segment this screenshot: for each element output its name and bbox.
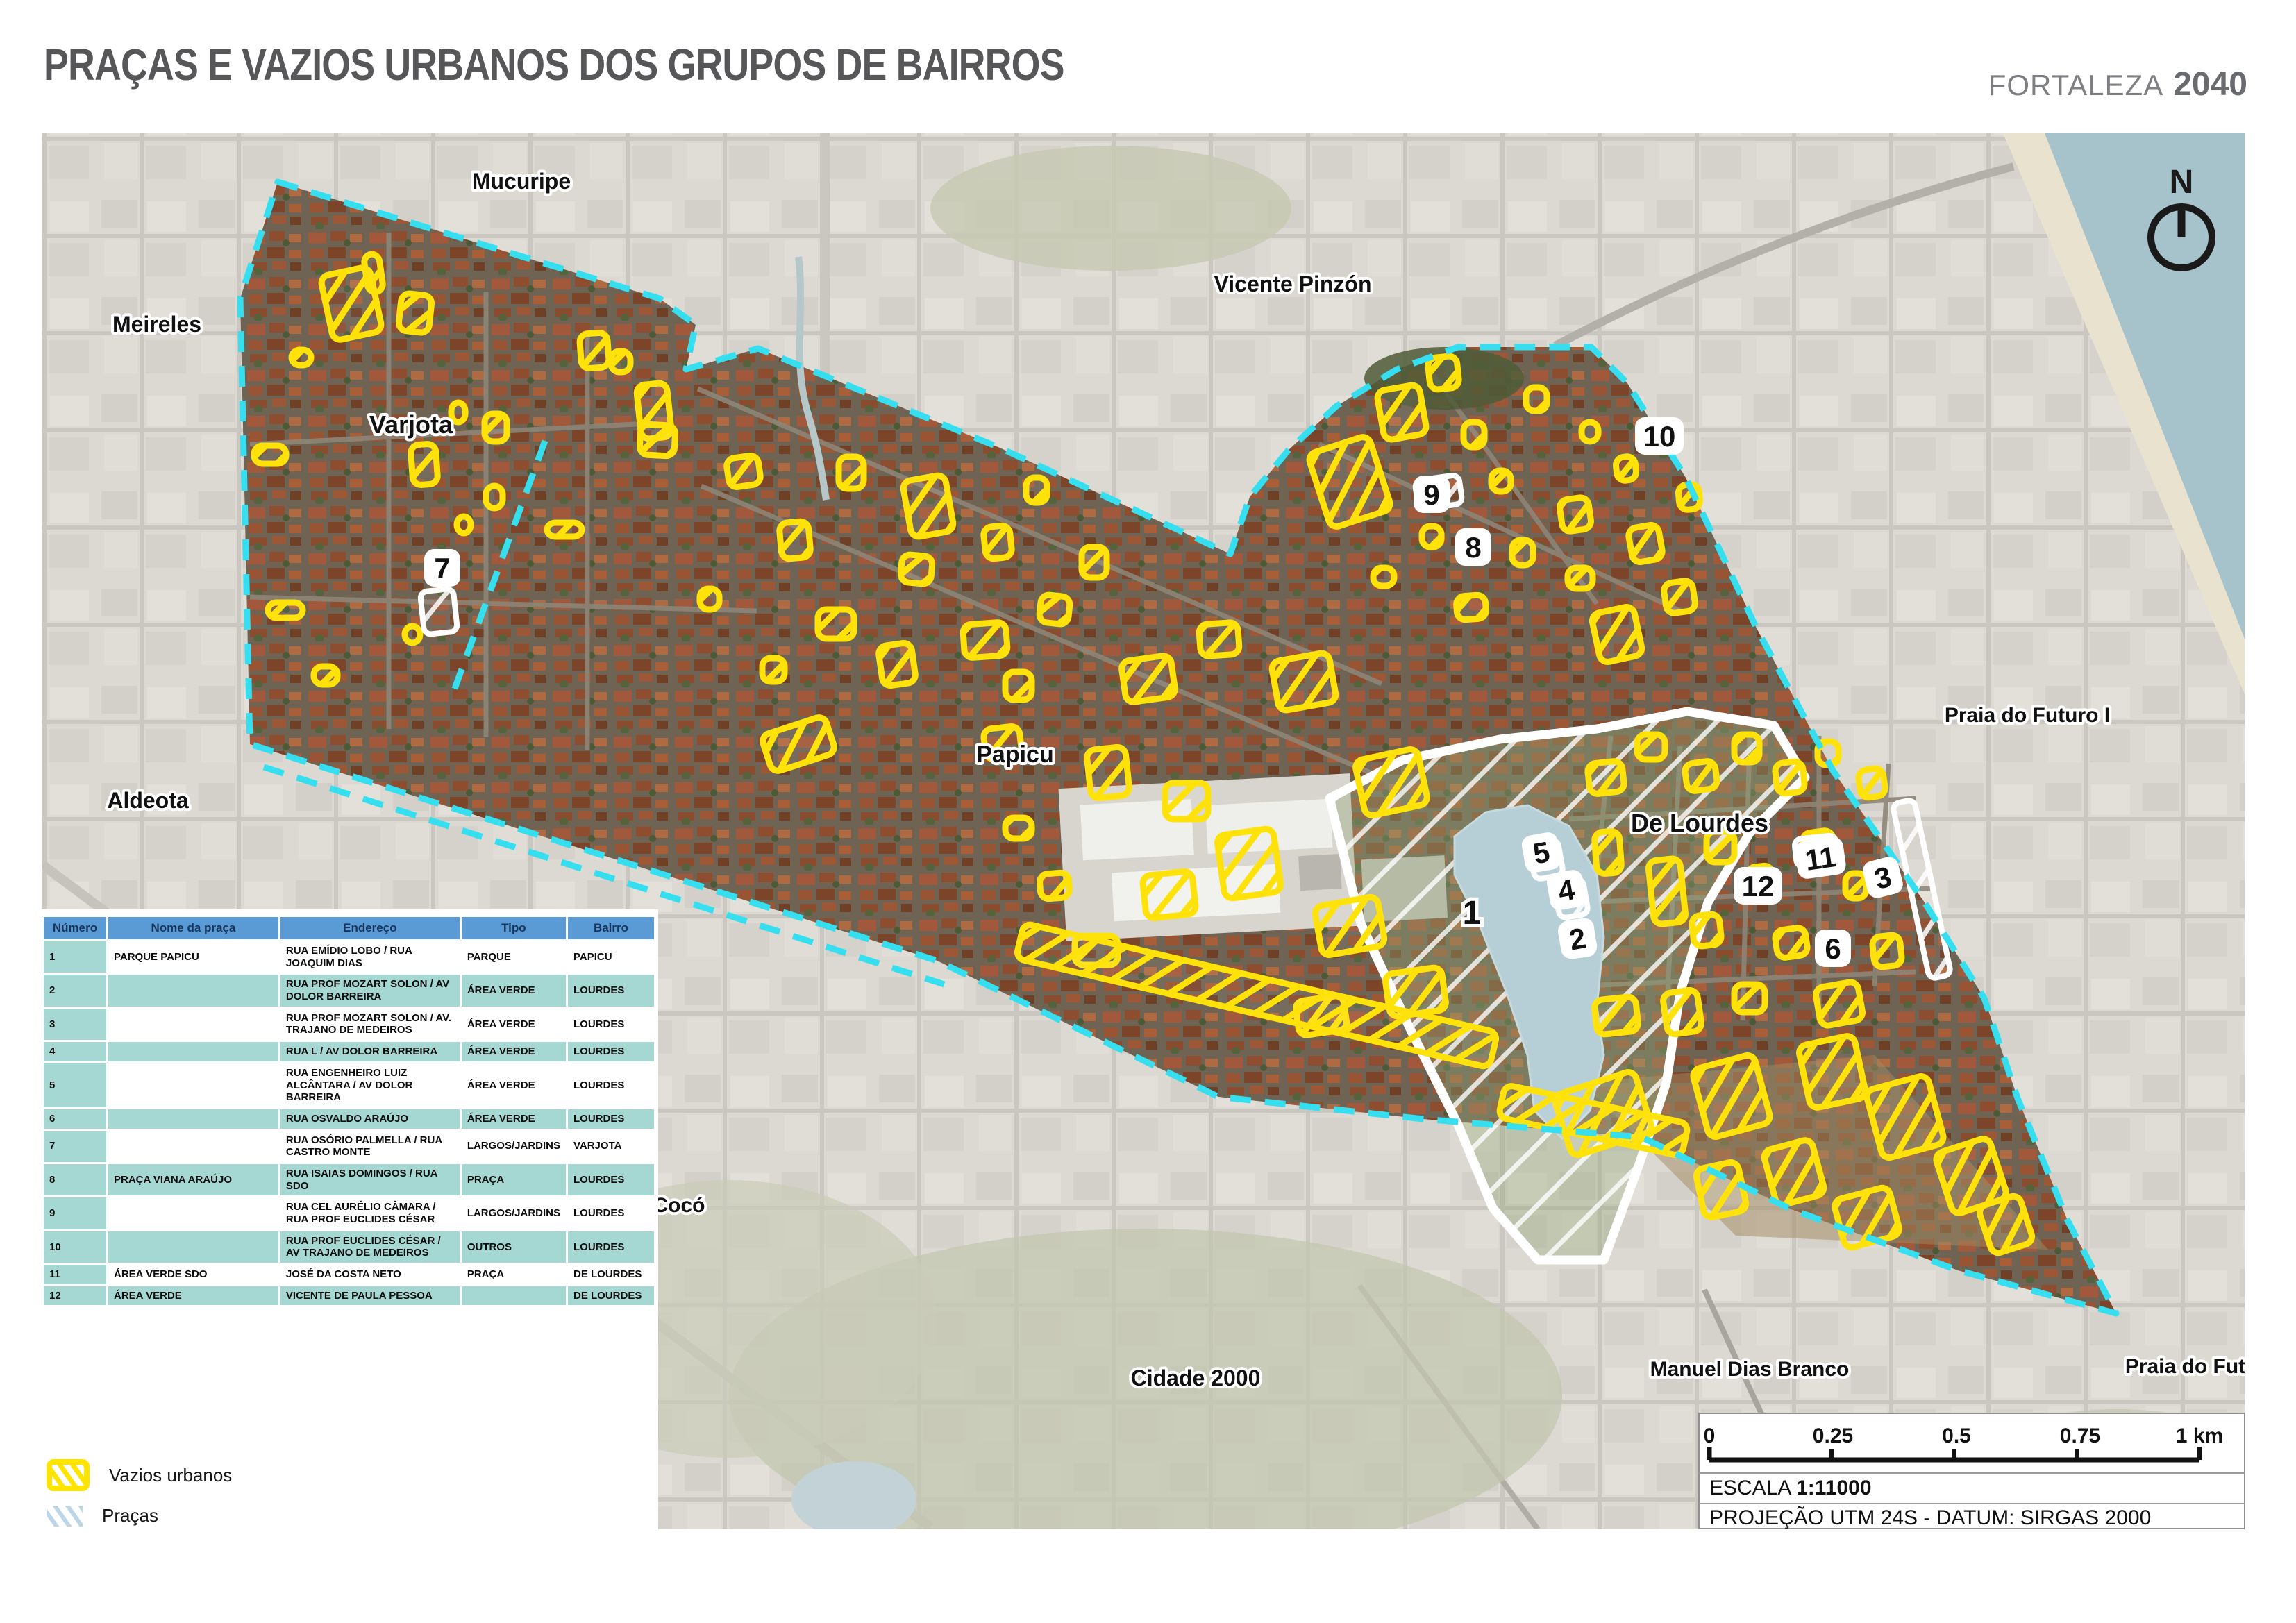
- vazio-shape: [726, 455, 761, 488]
- table-column-header: Número: [44, 917, 106, 939]
- vazio-shape: [398, 293, 432, 333]
- cell-tipo: [462, 1286, 566, 1306]
- cell-tipo: ÁREA VERDE: [462, 975, 566, 1006]
- table-row: 10RUA PROF EUCLIDES CÉSAR / AV TRAJANO D…: [44, 1231, 654, 1263]
- svg-text:9: 9: [1423, 478, 1439, 511]
- table-header: NúmeroNome da praçaEndereçoTipoBairro: [44, 917, 654, 939]
- page-title: PRAÇAS E VAZIOS URBANOS DOS GRUPOS DE BA…: [44, 39, 1064, 90]
- table-row: 9RUA CEL AURÉLIO CÂMARA / RUA PROF EUCLI…: [44, 1197, 654, 1229]
- vazio-shape: [451, 403, 465, 422]
- cell-addr: RUA OSVALDO ARAÚJO: [280, 1109, 460, 1129]
- region-label: Praia do Futuro I: [2125, 1355, 2245, 1378]
- vazio-shape: [1615, 456, 1636, 482]
- cell-tipo: LARGOS/JARDINS: [462, 1197, 566, 1229]
- map-marker-2: 2: [1557, 917, 1599, 960]
- map-marker-8: 8: [1455, 528, 1491, 566]
- cell-tipo: PRAÇA: [462, 1164, 566, 1195]
- fortaleza-2040-logo: FORTALEZA 2040: [1988, 65, 2247, 103]
- table-row: 8PRAÇA VIANA ARAÚJORUA ISAIAS DOMINGOS /…: [44, 1164, 654, 1195]
- cell-addr: RUA PROF EUCLIDES CÉSAR / AV TRAJANO DE …: [280, 1231, 460, 1263]
- cell-tipo: ÁREA VERDE: [462, 1063, 566, 1107]
- table-column-header: Bairro: [568, 917, 654, 939]
- vazio-shape: [1121, 655, 1176, 703]
- vazio-shape: [1591, 605, 1643, 663]
- legend-item-pracas: Praças: [47, 1505, 232, 1527]
- region-label: Praia do Futuro I: [1945, 704, 2110, 727]
- cell-addr: RUA ENGENHEIRO LUIZ ALCÂNTARA / AV DOLOR…: [280, 1063, 460, 1107]
- svg-text:8: 8: [1465, 531, 1481, 564]
- cell-addr: RUA ISAIAS DOMINGOS / RUA SDO: [280, 1164, 460, 1195]
- vazio-shape: [962, 622, 1007, 658]
- vazio-shape: [818, 609, 854, 639]
- vazio-shape: [1526, 387, 1547, 411]
- vazio-shape: [1491, 471, 1511, 491]
- cell-name: ÁREA VERDE: [108, 1286, 278, 1306]
- legend-item-vazios: Vazios urbanos: [47, 1459, 232, 1491]
- vazio-shape: [1663, 580, 1696, 614]
- cell-addr: JOSÉ DA COSTA NETO: [280, 1265, 460, 1284]
- table-row: 11ÁREA VERDE SDOJOSÉ DA COSTA NETOPRAÇAD…: [44, 1265, 654, 1284]
- map-marker-4: 4: [1545, 868, 1588, 911]
- region-label: Papicu: [976, 741, 1053, 768]
- cell-tipo: ÁREA VERDE: [462, 1042, 566, 1061]
- region-label: Varjota: [369, 410, 453, 439]
- cell-name: [108, 1109, 278, 1129]
- cell-name: [108, 975, 278, 1006]
- vazio-shape: [1512, 540, 1533, 565]
- vazio-shape: [639, 424, 676, 457]
- vazio-shape: [1594, 831, 1622, 874]
- region-label: Cocó: [653, 1194, 705, 1217]
- vazio-shape: [485, 414, 507, 442]
- cell-name: PARQUE PAPICU: [108, 941, 278, 973]
- region-label: Manuel Dias Branco: [1650, 1358, 1850, 1381]
- cell-bairro: LOURDES: [568, 1197, 654, 1229]
- pracas-swatch-icon: [47, 1506, 83, 1527]
- vazio-shape: [611, 351, 630, 372]
- projection-text: PROJEÇÃO UTM 24S - DATUM: SIRGAS 2000: [1709, 1506, 2151, 1529]
- vazio-shape: [1427, 355, 1460, 390]
- cell-bairro: VARJOTA: [568, 1131, 654, 1162]
- vazio-shape: [1314, 896, 1385, 957]
- cell-num: 8: [44, 1164, 106, 1195]
- map-marker-5: 5: [1520, 831, 1563, 874]
- cell-bairro: LOURDES: [568, 1164, 654, 1195]
- map-marker-1: 1: [1463, 895, 1482, 932]
- vazio-shape: [1798, 1034, 1866, 1109]
- map-marker-9: 9: [1414, 476, 1450, 513]
- cell-name: [108, 1197, 278, 1229]
- vazio-shape: [1422, 526, 1441, 547]
- vazio-shape: [1376, 384, 1427, 441]
- region-label: Meireles: [112, 312, 201, 337]
- cell-tipo: OUTROS: [462, 1231, 566, 1263]
- vazio-shape: [1865, 1075, 1945, 1159]
- north-label: N: [2170, 164, 2194, 201]
- table-row: 2RUA PROF MOZART SOLON / AV DOLOR BARREI…: [44, 975, 654, 1006]
- cell-tipo: PRAÇA: [462, 1265, 566, 1284]
- vazio-shape: [1774, 927, 1808, 959]
- cell-name: [108, 1231, 278, 1263]
- cell-num: 4: [44, 1042, 106, 1061]
- region-label: De Lourdes: [1631, 809, 1768, 837]
- scale-tick: 0.75: [2060, 1424, 2100, 1447]
- cell-bairro: LOURDES: [568, 975, 654, 1006]
- vazio-shape: [779, 521, 811, 559]
- cell-num: 5: [44, 1063, 106, 1107]
- praca-shape: [420, 589, 458, 635]
- cell-num: 6: [44, 1109, 106, 1129]
- vazio-shape: [1845, 873, 1866, 898]
- scale-tick: 0: [1704, 1424, 1716, 1447]
- cell-num: 10: [44, 1231, 106, 1263]
- vazio-shape: [1568, 568, 1593, 589]
- cell-bairro: LOURDES: [568, 1109, 654, 1129]
- legend-label: Vazios urbanos: [109, 1465, 232, 1486]
- vazio-shape: [1815, 981, 1864, 1027]
- cell-name: [108, 1042, 278, 1061]
- svg-text:10: 10: [1643, 420, 1676, 453]
- vazio-shape: [1763, 1138, 1826, 1206]
- vazio-shape: [1734, 984, 1765, 1012]
- vazio-shape: [486, 486, 503, 508]
- vazio-shape: [579, 333, 609, 369]
- vazio-shape: [363, 253, 383, 294]
- table-row: 7RUA OSÓRIO PALMELLA / RUA CASTRO MONTEL…: [44, 1131, 654, 1162]
- vazio-shape: [1354, 748, 1428, 816]
- table-column-header: Tipo: [462, 917, 566, 939]
- cell-num: 12: [44, 1286, 106, 1306]
- cell-addr: RUA CEL AURÉLIO CÂMARA / RUA PROF EUCLID…: [280, 1197, 460, 1229]
- vazio-shape: [1216, 828, 1282, 900]
- vazio-shape: [983, 525, 1013, 560]
- vazio-shape: [1734, 734, 1759, 762]
- vazio-shape: [1594, 996, 1639, 1035]
- cell-num: 7: [44, 1131, 106, 1162]
- vazio-shape: [839, 457, 864, 489]
- vazio-shape: [1857, 768, 1886, 799]
- vazio-shape: [1005, 818, 1032, 839]
- vazio-shape: [1637, 734, 1665, 759]
- vazio-shape: [1559, 496, 1592, 532]
- scale-tick: 0.5: [1942, 1424, 1971, 1447]
- cell-num: 2: [44, 975, 106, 1006]
- vazio-shape: [1373, 568, 1394, 586]
- cell-bairro: PAPICU: [568, 941, 654, 973]
- vazio-shape: [1005, 672, 1032, 700]
- map-marker-7: 7: [424, 549, 460, 587]
- table-row: 5RUA ENGENHEIRO LUIZ ALCÂNTARA / AV DOLO…: [44, 1063, 654, 1107]
- vazio-shape: [410, 444, 438, 485]
- scale-tick: 0.25: [1813, 1424, 1853, 1447]
- vazio-shape: [405, 626, 420, 643]
- scale-tick: 1 km: [2176, 1424, 2223, 1447]
- brand-name: FORTALEZA: [1988, 69, 2164, 102]
- vazio-shape: [1662, 989, 1702, 1035]
- cell-tipo: PARQUE: [462, 941, 566, 973]
- vazio-shape: [1587, 761, 1625, 795]
- vazio-shape: [1456, 595, 1486, 621]
- vazio-shape: [1039, 594, 1071, 625]
- cell-addr: RUA EMÍDIO LOBO / RUA JOAQUIM DIAS: [280, 941, 460, 973]
- cell-tipo: ÁREA VERDE: [462, 1009, 566, 1040]
- table-column-header: Endereço: [280, 917, 460, 939]
- vazio-shape: [268, 603, 303, 618]
- vazio-shape: [254, 446, 286, 464]
- escala-text: ESCALA 1:11000: [1709, 1477, 1872, 1499]
- cell-bairro: LOURDES: [568, 1063, 654, 1107]
- cell-num: 3: [44, 1009, 106, 1040]
- table-row: 1PARQUE PAPICURUA EMÍDIO LOBO / RUA JOAQ…: [44, 941, 654, 973]
- svg-text:7: 7: [434, 552, 450, 585]
- brand-year: 2040: [2173, 65, 2247, 103]
- table-row: 3RUA PROF MOZART SOLON / AV. TRAJANO DE …: [44, 1009, 654, 1040]
- poster-page: { "header": { "title": "PRAÇAS E VAZIOS …: [0, 0, 2296, 1623]
- region-label: Cidade 2000: [1131, 1365, 1261, 1390]
- vazio-shape: [1464, 422, 1484, 447]
- vazio-shape: [1684, 760, 1718, 792]
- vazio-shape: [1872, 934, 1902, 968]
- map-marker-6: 6: [1815, 930, 1851, 967]
- vazio-shape: [1271, 652, 1336, 711]
- cell-addr: VICENTE DE PAULA PESSOA: [280, 1286, 460, 1306]
- vazio-shape: [1198, 622, 1239, 657]
- region-label: Mucuripe: [472, 169, 571, 194]
- vazio-shape: [1691, 1054, 1771, 1138]
- region-label: Aldeota: [107, 788, 189, 813]
- cell-num: 11: [44, 1265, 106, 1284]
- map-legend: Vazios urbanos Praças: [47, 1459, 232, 1540]
- vazio-shape: [292, 350, 311, 365]
- vazios-urbanos-swatch-icon: [47, 1459, 90, 1491]
- cell-name: [108, 1063, 278, 1107]
- cell-addr: RUA L / AV DOLOR BARREIRA: [280, 1042, 460, 1061]
- vazio-shape: [902, 474, 954, 538]
- cell-addr: RUA PROF MOZART SOLON / AV. TRAJANO DE M…: [280, 1009, 460, 1040]
- cell-num: 9: [44, 1197, 106, 1229]
- cell-tipo: ÁREA VERDE: [462, 1109, 566, 1129]
- scale-panel: 0 0.25 0.5 0.75 1 km ESCALA 1:11000: [1699, 1413, 2245, 1529]
- vazio-shape: [1165, 783, 1208, 819]
- map-marker-11: 11: [1794, 836, 1847, 880]
- vazio-shape: [1142, 871, 1196, 918]
- table-row: 4RUA L / AV DOLOR BARREIRAÁREA VERDELOUR…: [44, 1042, 654, 1061]
- vazio-shape: [1039, 873, 1070, 900]
- vazio-shape: [1775, 761, 1805, 794]
- vazio-shape: [1627, 524, 1664, 564]
- vazio-shape: [547, 523, 582, 537]
- cell-bairro: LOURDES: [568, 1042, 654, 1061]
- cell-bairro: DE LOURDES: [568, 1286, 654, 1306]
- cell-addr: RUA PROF MOZART SOLON / AV DOLOR BARREIR…: [280, 975, 460, 1006]
- cell-tipo: LARGOS/JARDINS: [462, 1131, 566, 1162]
- cell-name: ÁREA VERDE SDO: [108, 1265, 278, 1284]
- cell-bairro: LOURDES: [568, 1231, 654, 1263]
- vazio-shape: [1648, 858, 1686, 925]
- cell-num: 1: [44, 941, 106, 973]
- cell-name: [108, 1131, 278, 1162]
- vazio-shape: [1695, 1161, 1748, 1218]
- cell-name: PRAÇA VIANA ARAÚJO: [108, 1164, 278, 1195]
- map-marker-10: 10: [1635, 417, 1684, 455]
- cell-name: [108, 1009, 278, 1040]
- vazio-shape: [1691, 914, 1722, 947]
- map-marker-12: 12: [1734, 867, 1782, 905]
- svg-text:6: 6: [1825, 932, 1841, 965]
- table-row: 12ÁREA VERDEVICENTE DE PAULA PESSOADE LO…: [44, 1286, 654, 1306]
- cell-bairro: LOURDES: [568, 1009, 654, 1040]
- svg-text:12: 12: [1742, 870, 1775, 902]
- cell-addr: RUA OSÓRIO PALMELLA / RUA CASTRO MONTE: [280, 1131, 460, 1162]
- vazio-shape: [1086, 746, 1130, 798]
- vazio-shape: [878, 642, 916, 687]
- vazio-shape: [314, 666, 337, 684]
- vazio-shape: [457, 516, 471, 533]
- vazio-shape: [900, 554, 932, 585]
- svg-text:1: 1: [1463, 895, 1482, 932]
- vazio-shape: [1082, 547, 1107, 578]
- table-column-header: Nome da praça: [108, 917, 278, 939]
- vazio-shape: [700, 589, 719, 609]
- region-label: Vicente Pinzón: [1214, 271, 1371, 296]
- vazio-shape: [1026, 478, 1047, 503]
- table-row: 6RUA OSVALDO ARAÚJOÁREA VERDELOURDES: [44, 1109, 654, 1129]
- pracas-table: NúmeroNome da praçaEndereçoTipoBairro 1P…: [42, 915, 656, 1307]
- legend-label: Praças: [102, 1505, 158, 1527]
- vazio-shape: [762, 658, 785, 682]
- vazio-shape: [1582, 422, 1598, 442]
- svg-text:11: 11: [1803, 840, 1838, 877]
- cell-bairro: DE LOURDES: [568, 1265, 654, 1284]
